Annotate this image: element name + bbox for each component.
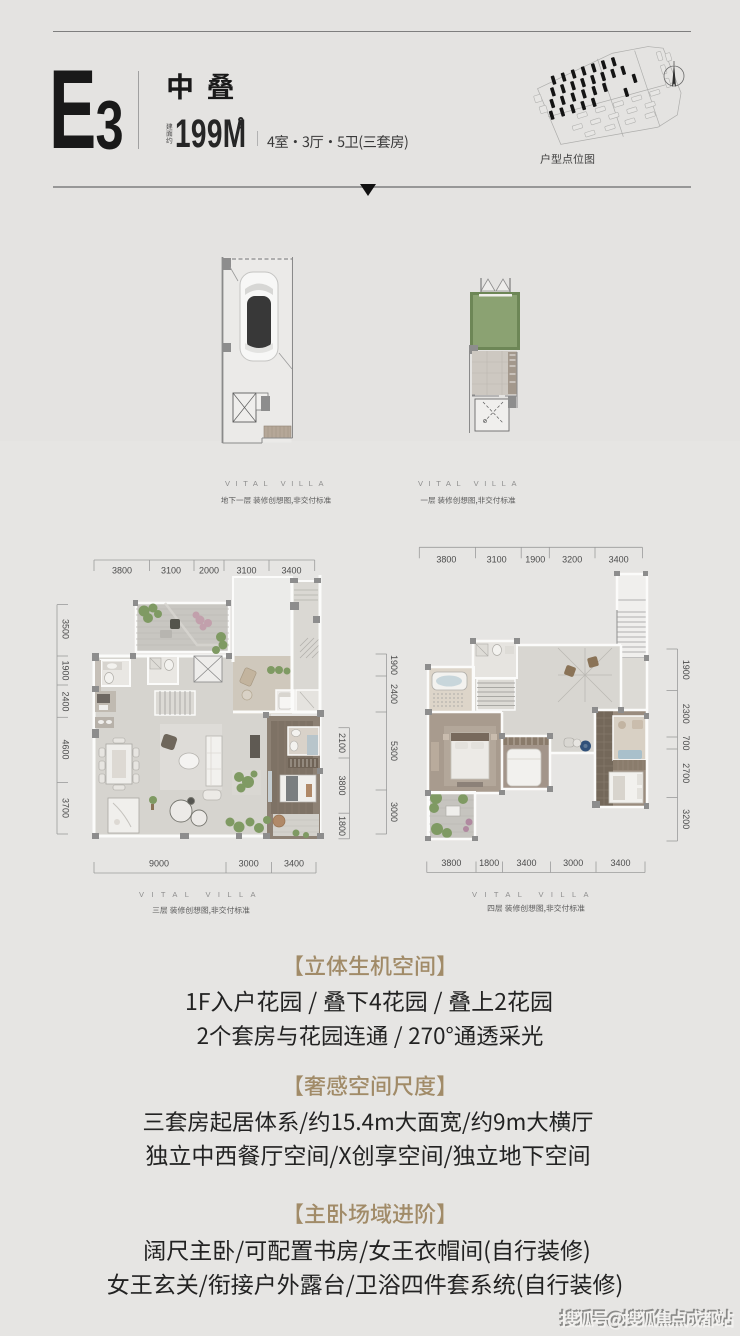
svg-text:3200: 3200: [562, 555, 582, 565]
svg-text:1800: 1800: [479, 858, 499, 868]
svg-text:2400: 2400: [389, 684, 399, 704]
svg-text:700: 700: [681, 735, 691, 750]
svg-text:3800: 3800: [441, 858, 461, 868]
svg-text:1900: 1900: [525, 555, 545, 565]
svg-text:3400: 3400: [516, 858, 536, 868]
svg-text:2700: 2700: [681, 763, 691, 783]
svg-text:1900: 1900: [681, 660, 691, 680]
svg-text:3400: 3400: [610, 858, 630, 868]
svg-text:3100: 3100: [487, 555, 507, 565]
svg-text:2300: 2300: [681, 704, 691, 724]
svg-text:1900: 1900: [389, 655, 399, 675]
svg-text:3400: 3400: [609, 555, 629, 565]
svg-text:3200: 3200: [681, 809, 691, 829]
svg-text:5300: 5300: [389, 741, 399, 761]
svg-text:3000: 3000: [563, 858, 583, 868]
svg-text:3800: 3800: [436, 555, 456, 565]
svg-text:3000: 3000: [389, 802, 399, 822]
